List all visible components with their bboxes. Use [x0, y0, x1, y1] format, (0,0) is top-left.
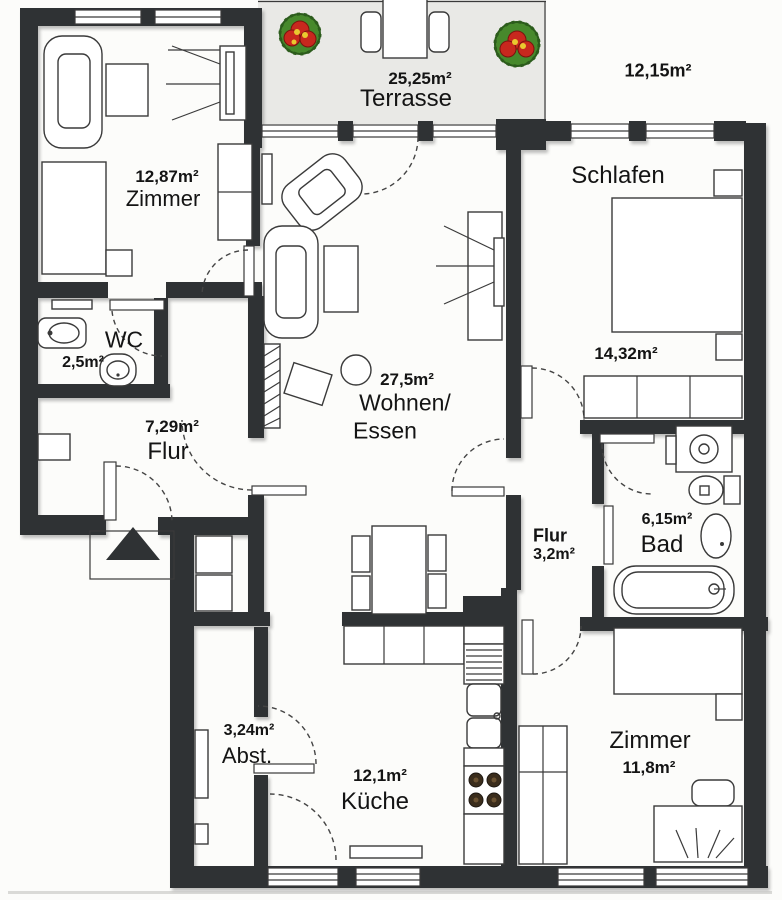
- wall-segment: [714, 121, 746, 141]
- schlafen-furniture: [584, 170, 742, 418]
- room-area-abst: 3,24m²: [224, 722, 275, 740]
- room-name-wohnen-2: Essen: [353, 418, 417, 445]
- sink: [701, 514, 731, 558]
- closet: [196, 536, 232, 573]
- door-opening: [108, 282, 166, 298]
- window: [75, 10, 141, 24]
- room-area-kueche: 12,1m²: [353, 766, 407, 786]
- room-name-abst: Abst.: [222, 743, 272, 769]
- wall-segment: [496, 119, 546, 150]
- sink-drain: [720, 542, 724, 546]
- room-area-zimmer2: 11,8m²: [623, 758, 676, 778]
- bed: [614, 628, 742, 694]
- window-sill: [350, 846, 422, 858]
- room-name-kueche: Küche: [341, 788, 409, 816]
- window: [656, 868, 748, 886]
- washing-machine-door: [699, 444, 709, 454]
- closet: [196, 575, 232, 611]
- coffee-table: [324, 246, 358, 312]
- door-leaf: [252, 486, 306, 495]
- room-area-garden: 12,15m²: [624, 61, 691, 82]
- wall-segment: [629, 121, 646, 141]
- chair: [429, 12, 449, 52]
- door-leaf: [452, 487, 504, 496]
- room-area-flur: 7,29m²: [145, 417, 199, 437]
- door-swing-arc: [532, 368, 584, 420]
- walls: [20, 8, 768, 888]
- terrace-door: [353, 125, 418, 137]
- tv-ray: [172, 46, 220, 64]
- window: [571, 124, 629, 138]
- room-name-zimmer2: Zimmer: [609, 727, 690, 755]
- room-name-wc: WC: [105, 327, 143, 354]
- storage: [38, 434, 232, 844]
- window: [155, 10, 221, 24]
- faucet: [48, 331, 53, 336]
- cabinet: [666, 436, 676, 464]
- window: [433, 125, 496, 137]
- sofa-cushion: [58, 54, 90, 128]
- wall-segment: [20, 515, 106, 535]
- chair: [361, 12, 381, 52]
- cabinet: [38, 434, 70, 460]
- toilet-tank: [724, 476, 740, 504]
- wall-segment: [338, 121, 353, 141]
- drainer: [464, 644, 504, 684]
- chair: [428, 574, 446, 608]
- terrace-door: [262, 125, 338, 137]
- bed: [42, 162, 106, 274]
- wall-segment: [20, 8, 38, 532]
- dining-table: [372, 526, 426, 614]
- tv: [494, 238, 504, 306]
- room-area-wc: 2,5m²: [62, 354, 104, 372]
- shelf: [52, 300, 92, 309]
- tv: [226, 52, 234, 114]
- room-area-flur2: 3,2m²: [533, 546, 575, 564]
- table: [383, 0, 427, 58]
- nightstand: [714, 170, 742, 196]
- floor-plan: 12,87m² Zimmer 25,25m² Terrasse 12,15m² …: [0, 0, 782, 900]
- kitchen-counter: [464, 814, 504, 864]
- door-leaf: [521, 366, 532, 418]
- wall-segment: [506, 140, 521, 458]
- chair: [428, 535, 446, 571]
- radiator-hatched: [264, 344, 280, 428]
- wall-segment: [248, 495, 264, 616]
- shelf: [195, 730, 208, 798]
- room-area-bad: 6,15m²: [642, 511, 693, 529]
- sofa-cushion: [276, 246, 306, 318]
- door-leaf: [244, 246, 254, 296]
- wall-segment: [254, 775, 268, 870]
- entrance-door-leaf: [104, 462, 116, 520]
- side-table: [106, 64, 148, 116]
- room-name-flur: Flur: [147, 438, 188, 466]
- kitchen-sink: [467, 718, 501, 748]
- entrance-arrow-icon: [106, 527, 160, 560]
- wall-segment: [254, 627, 268, 717]
- wall-segment: [20, 384, 170, 398]
- plant-icon: [280, 14, 320, 54]
- room-name-terrasse: Terrasse: [360, 85, 452, 113]
- window: [356, 868, 420, 886]
- wall-segment: [248, 296, 264, 438]
- door-swing-arc: [361, 137, 418, 194]
- radiator: [262, 154, 272, 204]
- wall-segment: [506, 495, 521, 590]
- room-area-zimmer1: 12,87m²: [135, 167, 198, 187]
- desk-chair: [692, 780, 734, 806]
- door-swing-arc: [602, 444, 652, 494]
- kitchen-sink: [467, 684, 501, 716]
- wardrobe: [584, 376, 742, 418]
- door-swing-arc: [533, 626, 581, 674]
- room-area-schlafen: 14,32m²: [594, 344, 657, 364]
- door-swing-arc: [116, 466, 172, 522]
- wall-segment: [744, 123, 766, 888]
- armchair: [275, 147, 368, 236]
- door-swing-arc: [270, 794, 336, 860]
- tv-ray: [172, 102, 220, 120]
- room-area-wohnen: 27,5m²: [380, 370, 434, 390]
- room-name-bad: Bad: [641, 531, 684, 559]
- round-table: [341, 355, 371, 385]
- window: [558, 868, 644, 886]
- bed: [612, 198, 742, 332]
- room-name-wohnen-1: Wohnen/: [359, 390, 451, 417]
- wall-segment: [545, 121, 571, 141]
- kitchen-counter: [344, 626, 464, 664]
- door-leaf: [604, 506, 613, 564]
- room-name-flur2: Flur: [533, 526, 567, 547]
- nightstand: [716, 694, 742, 720]
- wall-segment: [592, 566, 604, 622]
- shelf: [195, 824, 208, 844]
- kitchen-counter: [464, 626, 504, 644]
- wall-segment: [192, 612, 270, 626]
- scan-artifact: [8, 891, 772, 894]
- toilet-detail: [700, 486, 709, 495]
- kitchen-counter: [464, 748, 504, 766]
- nightstand: [716, 334, 742, 360]
- wall-segment: [418, 121, 433, 141]
- chair: [352, 576, 370, 610]
- bed-foot-shelf: [106, 250, 132, 276]
- room-name-schlafen: Schlafen: [571, 162, 664, 190]
- door-leaf: [522, 620, 533, 674]
- chair: [352, 536, 370, 572]
- zimmer1-furniture: [42, 36, 252, 276]
- wall-segment: [154, 298, 168, 390]
- sink-basin: [49, 323, 79, 343]
- room-name-zimmer1: Zimmer: [126, 186, 201, 212]
- stove: [464, 766, 504, 814]
- door-leaf: [600, 434, 654, 443]
- toilet-drain: [116, 373, 119, 376]
- door-leaf: [110, 300, 164, 310]
- window: [646, 124, 714, 138]
- door-swing-arc: [452, 439, 504, 491]
- chair: [284, 363, 332, 406]
- balcony-door: [268, 868, 338, 886]
- plant-icon: [495, 22, 539, 66]
